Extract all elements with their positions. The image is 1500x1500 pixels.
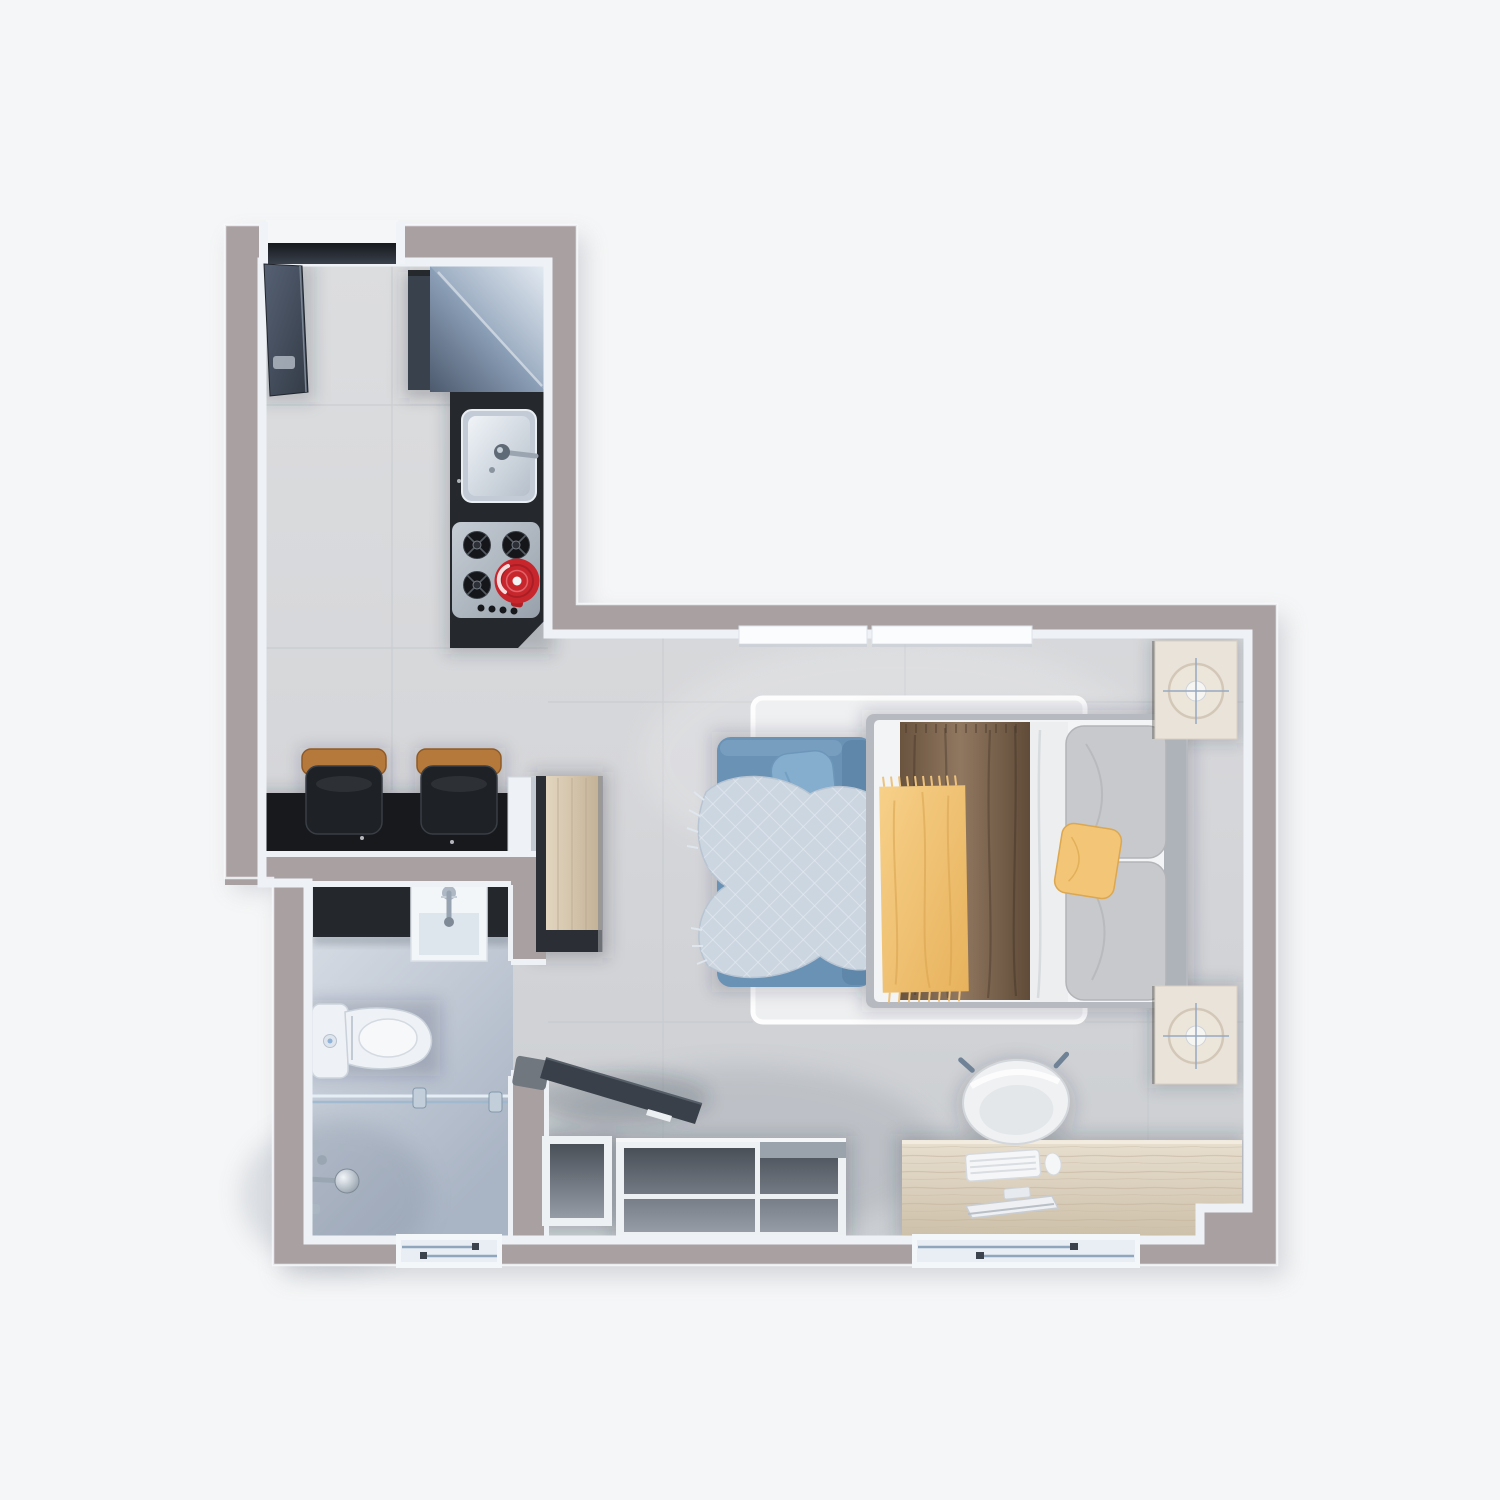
clerestory-window-1 <box>739 626 867 644</box>
double-bed <box>866 714 1188 1008</box>
nightstand-bottom <box>1152 986 1237 1084</box>
vanity-sink <box>411 885 487 961</box>
refrigerator <box>408 266 548 392</box>
yellow-throw <box>879 775 969 1002</box>
wardrobe <box>536 776 603 952</box>
burner-icon <box>503 532 530 559</box>
gas-stove <box>452 522 540 618</box>
nightstand-top <box>1152 641 1237 739</box>
studio-window <box>912 1234 1140 1268</box>
door-handle-icon <box>273 356 295 369</box>
clerestory-window-2 <box>872 626 1032 644</box>
bathroom-right-wall-lower <box>511 1072 546 1242</box>
clerestory-windows <box>739 626 1032 647</box>
bar-stool-1 <box>302 749 386 834</box>
burner-icon <box>464 572 491 599</box>
bathroom-window <box>396 1234 502 1268</box>
desk <box>902 1140 1242 1237</box>
floorplan-canvas <box>0 0 1500 1500</box>
door-recess <box>266 243 398 264</box>
keyboard <box>965 1149 1041 1181</box>
kitchen-sink <box>462 410 536 502</box>
burner-icon <box>464 532 491 559</box>
shower-head-icon <box>335 1169 359 1193</box>
accent-pillow <box>1053 822 1123 901</box>
bar-stool-2 <box>417 749 501 834</box>
tv-console <box>542 1136 846 1240</box>
